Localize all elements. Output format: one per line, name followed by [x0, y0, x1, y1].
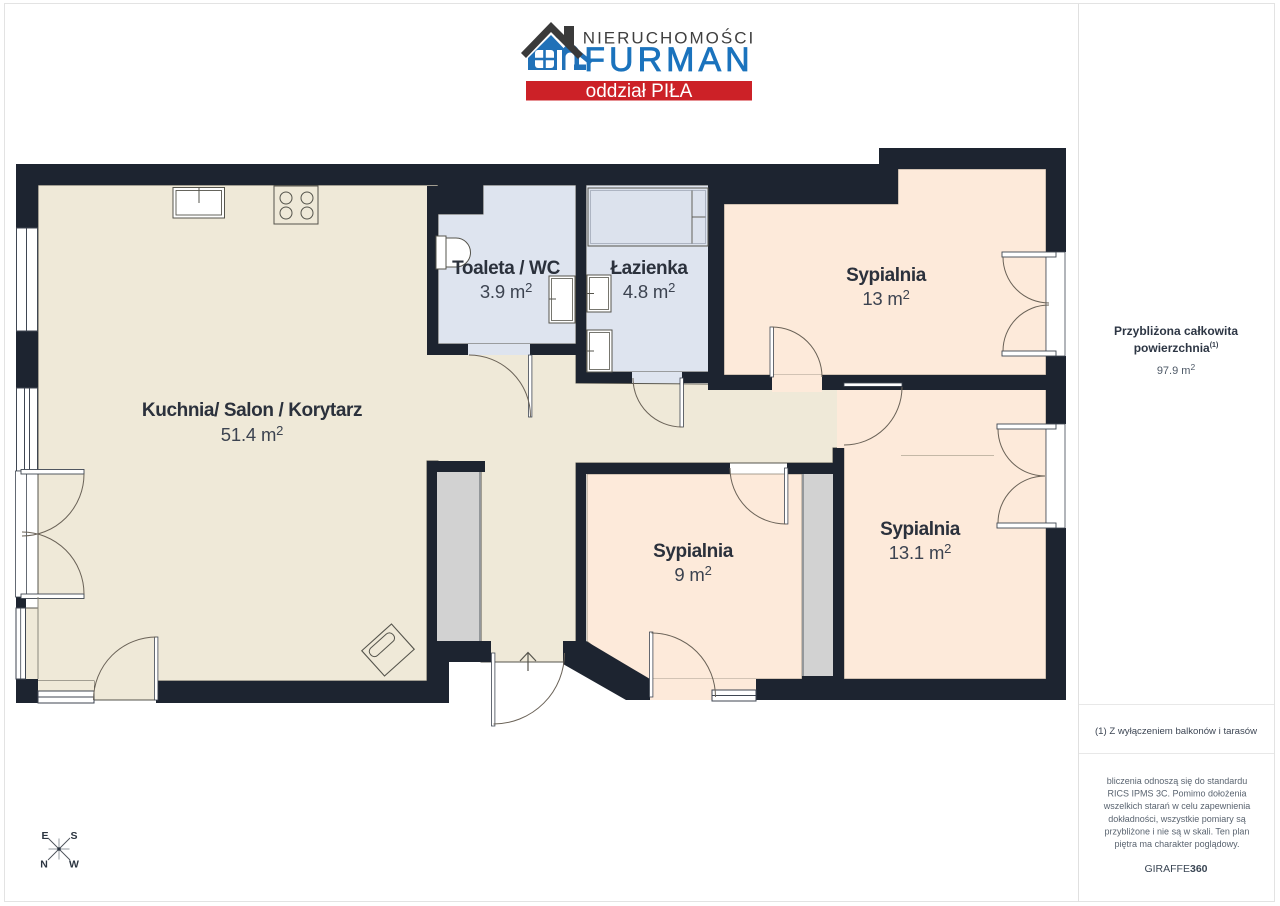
- svg-text:Toaleta / WC: Toaleta / WC: [452, 258, 560, 279]
- svg-text:S: S: [70, 830, 77, 842]
- svg-text:W: W: [69, 859, 79, 871]
- svg-text:RICS IPMS 3C. Pomimo dołożenia: RICS IPMS 3C. Pomimo dołożenia: [1107, 789, 1246, 799]
- svg-text:Sypialnia: Sypialnia: [846, 265, 927, 286]
- svg-text:Sypialnia: Sypialnia: [653, 541, 734, 562]
- svg-text:Sypialnia: Sypialnia: [880, 519, 961, 540]
- svg-text:Przybliżona całkowita: Przybliżona całkowita: [1114, 324, 1238, 338]
- svg-text:13 m2: 13 m2: [862, 287, 909, 309]
- svg-text:dokładności, wszystkie pomiary: dokładności, wszystkie pomiary są: [1108, 814, 1246, 824]
- svg-text:powierzchnia(1): powierzchnia(1): [1134, 341, 1219, 355]
- svg-text:4.8 m2: 4.8 m2: [623, 280, 675, 302]
- svg-text:E: E: [41, 830, 48, 842]
- svg-text:FURMAN: FURMAN: [584, 41, 753, 79]
- svg-text:51.4 m2: 51.4 m2: [221, 423, 283, 445]
- svg-text:N: N: [40, 859, 48, 871]
- svg-text:(1) Z wyłączeniem balkonów i t: (1) Z wyłączeniem balkonów i tarasów: [1095, 726, 1257, 737]
- svg-text:Kuchnia/ Salon / Korytarz: Kuchnia/ Salon / Korytarz: [142, 400, 362, 421]
- svg-text:oddział PIŁA: oddział PIŁA: [586, 81, 693, 102]
- svg-text:GIRAFFE360: GIRAFFE360: [1144, 863, 1207, 875]
- svg-text:3.9 m2: 3.9 m2: [480, 280, 532, 302]
- svg-text:przybliżone i nie są w skali.: przybliżone i nie są w skali. Ten plan: [1105, 826, 1250, 836]
- svg-text:piętra ma charakter poglądowy.: piętra ma charakter poglądowy.: [1115, 839, 1240, 849]
- svg-text:wszelkich starań w celu zapewn: wszelkich starań w celu zapewnienia: [1103, 801, 1251, 811]
- svg-text:Łazienka: Łazienka: [610, 258, 688, 279]
- svg-text:bliczenia odnoszą się do stand: bliczenia odnoszą się do standardu: [1107, 776, 1248, 786]
- svg-text:97.9 m2: 97.9 m2: [1157, 362, 1196, 377]
- svg-text:13.1 m2: 13.1 m2: [889, 541, 951, 563]
